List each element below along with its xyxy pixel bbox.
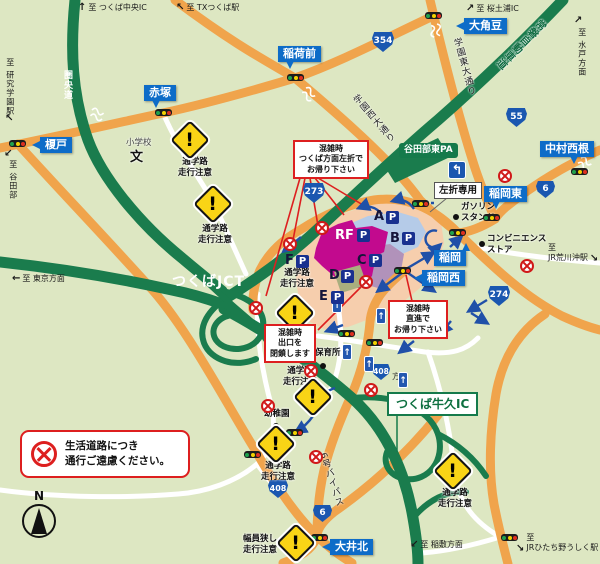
- congestion-exit-closed-callout: 混雑時 出口を 閉鎖します: [264, 324, 316, 363]
- traffic-light-icon: [366, 339, 383, 346]
- intersection-label-nakamura-nishine: 中村西根: [540, 141, 594, 157]
- destination-tokyo-area: ←至 東京方面: [12, 274, 65, 284]
- school-route-warning-text: 通学路 走行注意: [259, 461, 297, 482]
- mito-arrow: ↗: [574, 16, 582, 26]
- congestion-left-turn-callout: 混雑時 つくば方面左折で お帰り下さい: [293, 140, 369, 179]
- traffic-light-icon: [571, 168, 588, 175]
- one-way-sign-icon: ↑: [398, 372, 408, 388]
- parking-lot-rf-label: RF: [335, 229, 354, 242]
- down-left-arrow-icon: ↙: [4, 149, 12, 159]
- intersection-label-inarimae: 稲荷前: [278, 46, 321, 62]
- left-turn-only-label: 左折専用: [434, 182, 482, 199]
- no-entry-icon: [304, 364, 318, 378]
- traffic-light-icon: [449, 229, 466, 236]
- down-right-arrow-icon: ↘: [516, 544, 524, 554]
- compass-icon: [22, 504, 56, 538]
- tsukuba-ushiku-ic-label: つくば牛久IC: [387, 392, 478, 416]
- local-road-notice-text: 生活道路につき 通行ご遠慮ください。: [65, 439, 170, 468]
- traffic-light-icon: [425, 12, 442, 19]
- school-route-warning-text: 通学路 走行注意: [176, 157, 214, 178]
- nursery-dot: [320, 363, 326, 369]
- parking-icon: P: [331, 291, 344, 304]
- intersection-label-inaoka-higashi: 稲岡東: [484, 186, 527, 202]
- left-turn-only-leader: [430, 198, 447, 212]
- traffic-light-icon: [155, 109, 172, 116]
- traffic-light-icon: [483, 214, 500, 221]
- no-entry-icon: [283, 237, 297, 251]
- parking-lot-e-label: E: [319, 290, 328, 303]
- school-route-warning-text: 通学路 走行注意: [196, 224, 234, 245]
- parking-lot-f-label: F: [285, 254, 294, 267]
- no-entry-icon: [31, 441, 57, 467]
- school-route-warning-text: 通学路 走行注意: [436, 488, 474, 509]
- kenkyu-gakuen-arrow: ↖: [5, 114, 13, 124]
- parking-icon: P: [341, 270, 354, 283]
- no-entry-icon: [364, 383, 378, 397]
- parking-icon: P: [357, 229, 370, 242]
- no-entry-icon: [309, 450, 323, 464]
- up-right-arrow-icon: ↗: [466, 4, 474, 14]
- parking-lot-b-label: B: [390, 232, 400, 245]
- convenience-store-dot: [479, 241, 485, 247]
- one-way-sign-icon: ↑: [376, 308, 386, 324]
- intersection-label-akatsuka: 赤塚: [144, 85, 176, 101]
- convenience-store-label: コンビニエンス ストア: [487, 234, 546, 255]
- road-label-kenodo: 圏央道: [61, 70, 74, 100]
- traffic-light-icon: [286, 429, 303, 436]
- up-arrow-icon: ↑: [78, 3, 86, 13]
- traffic-light-icon: [9, 140, 26, 147]
- intersection-label-enokido: 榎戸: [40, 137, 72, 153]
- parking-lot-c-label: C: [357, 254, 367, 267]
- up-left-arrow-icon: ↖: [176, 3, 184, 13]
- one-way-sign-icon: ↑: [342, 344, 352, 360]
- no-entry-icon: [261, 399, 275, 413]
- destination-kenkyu-gakuen-station: 至 研究学園駅: [5, 58, 14, 116]
- no-entry-icon: [359, 275, 373, 289]
- destination-inashiki-area: ↙至 稲敷方面: [410, 540, 463, 550]
- traffic-light-icon: [394, 267, 411, 274]
- nursery-label: 保育所: [315, 348, 341, 359]
- school-route-warning-text: 通学路 走行注意: [278, 268, 316, 289]
- traffic-light-icon: [412, 200, 429, 207]
- intersection-label-inaoka-nishi: 稲岡西: [422, 270, 465, 286]
- destination-jr-hitachino-ushiku-station: ↘至 JRひたち野うしく駅: [516, 533, 598, 554]
- intersection-label-oi-kita: 大井北: [330, 539, 373, 555]
- intersection-label-inaoka: 稲岡: [434, 250, 466, 266]
- no-entry-icon: [315, 221, 329, 235]
- no-entry-icon: [249, 301, 263, 315]
- parking-icon: P: [402, 232, 415, 245]
- elementary-school-label: 小学校: [126, 138, 152, 149]
- parking-lot-a-label: A: [374, 210, 384, 223]
- destination-mito-area: 至 水戸方面: [577, 28, 586, 77]
- gas-station-dot: [453, 214, 459, 220]
- left-arrow-icon: ←: [12, 274, 20, 284]
- road-route-6-south: [490, 314, 545, 564]
- destination-tx-tsukuba-station: ↖至 TXつくば駅: [176, 3, 239, 13]
- down-left-arrow-icon: ↙: [410, 540, 418, 550]
- up-right-arrow-icon: ↗: [574, 16, 582, 26]
- intersection-label-sasagi: 大角豆: [464, 18, 507, 34]
- narrow-road-warning-text: 幅員狭し 走行注意: [238, 534, 282, 555]
- destination-tsukuba-chuo-ic: ↑至 つくば中央IC: [78, 3, 147, 13]
- parking-icon: P: [296, 255, 309, 268]
- parking-lot-d-label: D: [329, 269, 340, 282]
- down-right-arrow-icon: ↘: [590, 254, 598, 264]
- destination-yatabe: 至 谷田部: [8, 160, 17, 200]
- parking-icon: P: [386, 211, 399, 224]
- congestion-go-straight-callout: 混雑時 直進で お帰り下さい: [388, 300, 448, 339]
- yatabe-higashi-pa-label: 谷田部東PA: [399, 143, 458, 158]
- destination-jr-arakawaoki-station: 至 JR荒川沖駅↘: [548, 243, 598, 264]
- parking-icon: P: [369, 254, 382, 267]
- north-label: N: [20, 490, 58, 502]
- local-road-notice: 生活道路につき 通行ご遠慮ください。: [20, 430, 190, 478]
- access-map: ↑至 つくば中央IC ↖至 TXつくば駅 ↗至 桜土浦IC ↗ 至 水戸方面 至…: [0, 0, 600, 564]
- no-entry-icon: [498, 169, 512, 183]
- traffic-light-icon: [338, 330, 355, 337]
- traffic-light-icon: [287, 74, 304, 81]
- traffic-light-icon: [501, 534, 518, 541]
- tsukuba-jct-label: つくばJCT: [172, 274, 245, 290]
- destination-sakura-tsuchiura-ic: ↗至 桜土浦IC: [466, 4, 519, 14]
- compass-north: N: [20, 490, 58, 538]
- up-left-arrow-icon: ↖: [5, 114, 13, 124]
- one-way-sign-icon: ↑: [364, 356, 374, 372]
- yatabe-arrow: ↙: [4, 149, 12, 159]
- traffic-light-icon: [244, 451, 261, 458]
- left-turn-sign-icon: ↰: [448, 161, 466, 179]
- no-entry-icon: [520, 259, 534, 273]
- school-map-symbol: 文: [130, 150, 143, 166]
